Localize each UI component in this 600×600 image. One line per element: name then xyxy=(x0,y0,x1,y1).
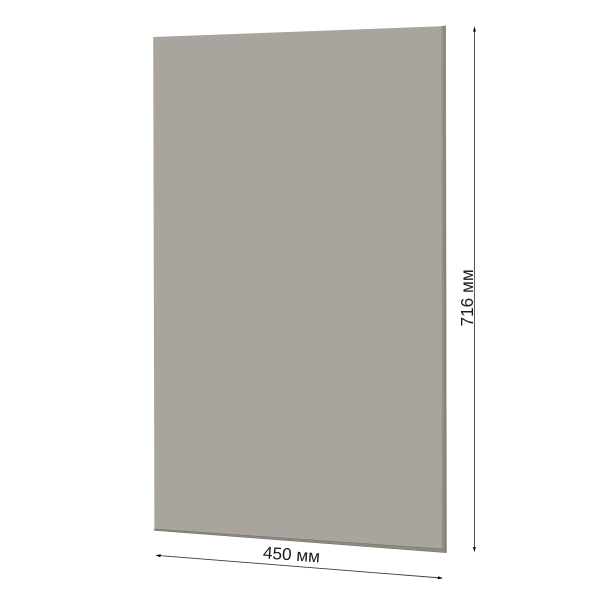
svg-text:450 мм: 450 мм xyxy=(262,542,320,566)
svg-text:716 мм: 716 мм xyxy=(457,269,477,326)
